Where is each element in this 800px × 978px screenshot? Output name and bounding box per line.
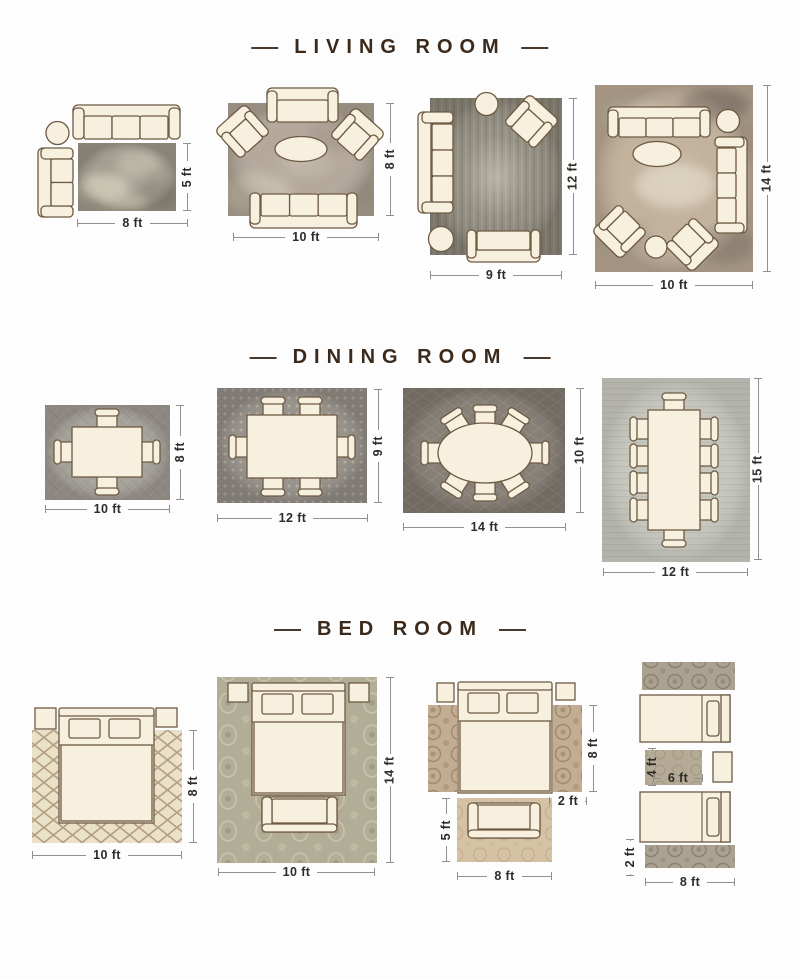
height-dimension: 10 ft [573, 388, 587, 513]
height-dimension: 9 ft [371, 389, 385, 503]
side-table [475, 93, 498, 116]
width-dimension: 10 ft [218, 865, 375, 879]
bench [468, 803, 540, 838]
pillow [707, 798, 719, 836]
nightstand [437, 683, 454, 702]
pillow [302, 694, 333, 714]
width-dimension: 10 ft [233, 230, 379, 244]
width-label: 9 ft [486, 269, 506, 282]
sofa [418, 112, 453, 213]
layout-illustration [215, 82, 405, 247]
title-dash [250, 357, 277, 359]
layout-illustration [592, 373, 772, 583]
width-dimension: 8 ft [77, 216, 188, 230]
height-dimension: 5 ft [180, 143, 194, 211]
title-dash [523, 357, 550, 359]
pillow [507, 693, 538, 713]
nightstand [228, 683, 248, 702]
dining-table [648, 410, 700, 530]
bed [59, 708, 154, 823]
width-label: 10 ft [292, 231, 320, 244]
section-title-text: LIVING ROOM [294, 36, 505, 59]
pillow [109, 719, 140, 738]
height-label: 12 ft [567, 163, 580, 191]
side-table [717, 110, 740, 133]
nightstand [556, 683, 575, 700]
nightstand [35, 708, 56, 729]
layout-dining-14x10: 10 ft 14 ft [395, 383, 590, 538]
bed [458, 682, 552, 793]
loveseat [267, 88, 338, 122]
layout-illustration [590, 78, 785, 293]
title-dash [499, 629, 526, 631]
height-label: 14 ft [384, 756, 397, 784]
sofa [250, 193, 357, 228]
height-dimension: 14 ft [760, 85, 774, 272]
sofa [715, 137, 747, 233]
accent-rug-width-dimension: 6 ft [653, 771, 703, 785]
runner-length-dimension: 8 ft [645, 875, 735, 889]
ottoman [429, 227, 454, 252]
section-title-bed-room: BED ROOM [274, 618, 526, 641]
bench [262, 797, 337, 832]
layout-bed-10x14: 14 ft 10 ft [210, 655, 400, 885]
height-dimension: 8 ft [383, 103, 397, 216]
layout-illustration [210, 655, 400, 885]
height-dimension: 8 ft [186, 730, 200, 843]
sofa [608, 107, 710, 137]
foot-rug-height-dimension: 5 ft [439, 798, 453, 862]
layout-dining-12x15: 15 ft 12 ft [592, 373, 772, 583]
title-dash [274, 629, 301, 631]
height-label: 8 ft [187, 776, 200, 796]
section-title-text: DINING ROOM [293, 346, 508, 369]
runner-rug [645, 845, 735, 868]
width-dimension: 12 ft [217, 511, 368, 525]
rug-size-guide: LIVING ROOM DINING ROOM BED ROOM [0, 0, 800, 978]
runner-length-dimension: 8 ft [586, 705, 600, 792]
height-label: 8 ft [384, 149, 397, 169]
width-label: 8 ft [122, 217, 142, 230]
accent-rug-width-label: 6 ft [668, 772, 688, 785]
oval-dining-table [438, 423, 532, 483]
layout-living-10x8: 8 ft 10 ft [215, 82, 405, 247]
layout-illustration [395, 383, 590, 538]
twin-bed [640, 695, 730, 742]
layout-illustration [25, 700, 205, 865]
layout-living-8x5: 5 ft 8 ft [30, 95, 190, 240]
layout-bed-twin-runners: 4 ft 6 ft 2 ft 8 ft [615, 650, 785, 890]
sofa [73, 105, 180, 139]
pillow [262, 694, 293, 714]
dining-table [247, 415, 337, 478]
runner-rug [642, 662, 735, 690]
runner-rug [428, 705, 457, 792]
title-dash [522, 47, 549, 49]
layout-dining-12x9: 9 ft 12 ft [205, 378, 390, 528]
layout-illustration [205, 378, 390, 528]
loveseat [38, 148, 73, 217]
foot-rug-width-label: 8 ft [494, 870, 514, 883]
width-dimension: 9 ft [430, 268, 562, 282]
width-label: 10 ft [93, 849, 121, 862]
width-label: 10 ft [660, 279, 688, 292]
foot-rug-height-label: 5 ft [440, 820, 453, 840]
width-dimension: 14 ft [403, 520, 566, 534]
runner-rug [553, 705, 582, 792]
ottoman [645, 236, 667, 258]
nightstand [713, 752, 732, 782]
height-dimension: 8 ft [173, 405, 187, 500]
layout-living-9x12: 12 ft 9 ft [405, 85, 595, 285]
runner-width-label: 2 ft [558, 795, 578, 808]
height-label: 8 ft [174, 442, 187, 462]
height-label: 10 ft [574, 437, 587, 465]
coffee-table [633, 142, 681, 167]
height-label: 15 ft [752, 455, 765, 483]
side-table [46, 122, 69, 145]
height-dimension: 14 ft [383, 677, 397, 863]
height-label: 5 ft [181, 167, 194, 187]
pillow [69, 719, 100, 738]
runner-length-label: 8 ft [587, 738, 600, 758]
height-label: 9 ft [372, 436, 385, 456]
title-dash [251, 47, 278, 49]
twin-bed [640, 792, 730, 842]
width-label: 10 ft [283, 866, 311, 879]
width-dimension: 10 ft [45, 502, 170, 516]
bed [252, 683, 345, 795]
layout-bed-runners: 8 ft 2 ft 5 ft 8 ft [420, 655, 605, 885]
width-label: 12 ft [662, 566, 690, 579]
width-dimension: 10 ft [32, 848, 182, 862]
layout-living-10x14: 14 ft 10 ft [590, 78, 785, 293]
runner-length-label: 8 ft [680, 876, 700, 889]
layout-dining-10x8: 8 ft 10 ft [35, 395, 195, 520]
foot-rug-width-dimension: 8 ft [457, 869, 552, 883]
layout-bed-10x8: 8 ft 10 ft [25, 700, 205, 865]
width-label: 14 ft [471, 521, 499, 534]
runner-width-dimension: 2 ft [623, 839, 637, 876]
coffee-table [275, 137, 327, 162]
pillow [468, 693, 499, 713]
runner-width-dimension: 2 ft [549, 794, 587, 808]
loveseat [467, 230, 540, 262]
pillow [707, 701, 719, 736]
width-label: 12 ft [279, 512, 307, 525]
section-title-living-room: LIVING ROOM [251, 36, 548, 59]
nightstand [349, 683, 369, 702]
nightstand [156, 708, 177, 727]
width-dimension: 12 ft [603, 565, 748, 579]
rug [74, 143, 178, 213]
section-title-dining-room: DINING ROOM [250, 346, 551, 369]
section-title-text: BED ROOM [317, 618, 483, 641]
width-label: 10 ft [94, 503, 122, 516]
runner-width-label: 2 ft [624, 847, 637, 867]
width-dimension: 10 ft [595, 278, 753, 292]
height-dimension: 15 ft [751, 378, 765, 560]
dining-table [72, 427, 142, 477]
height-label: 14 ft [761, 165, 774, 193]
layout-illustration [615, 650, 785, 890]
height-dimension: 12 ft [566, 98, 580, 255]
